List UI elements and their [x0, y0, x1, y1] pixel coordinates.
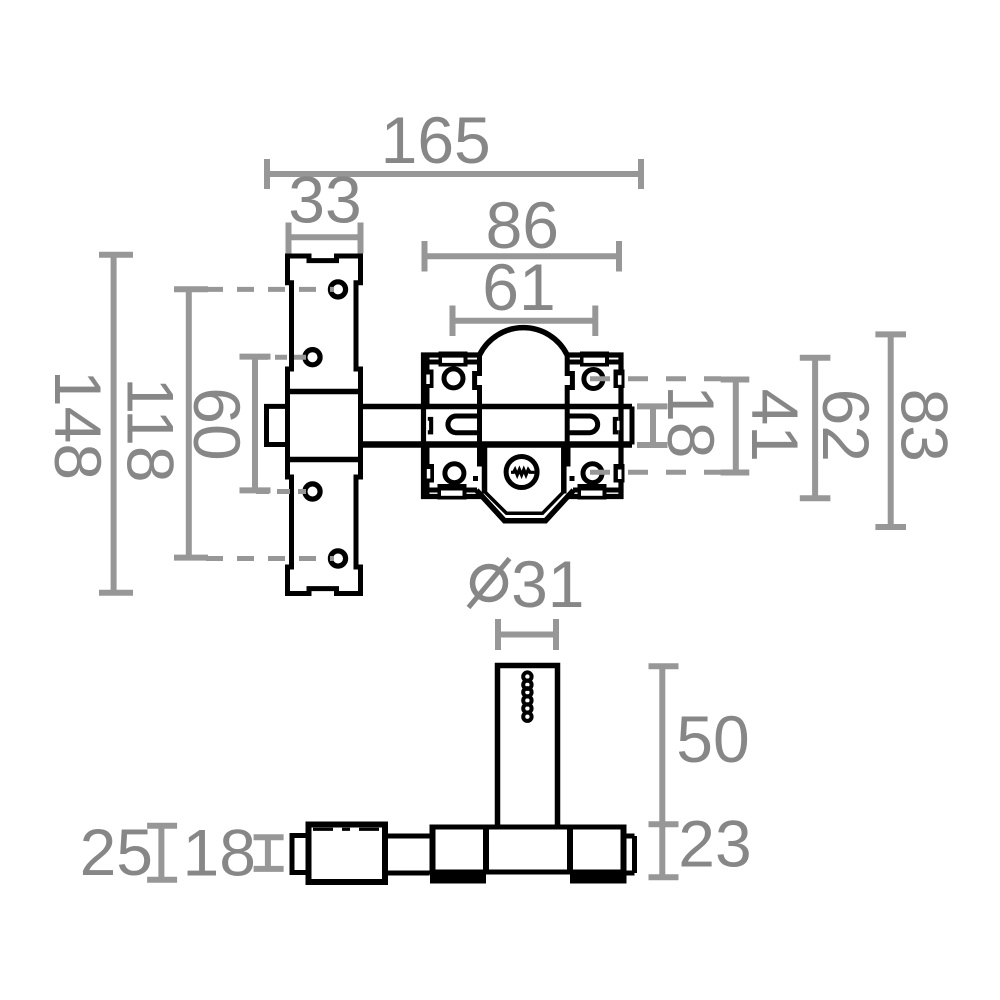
svg-text:61: 61: [482, 250, 555, 324]
svg-text:31: 31: [511, 547, 584, 621]
svg-text:33: 33: [288, 163, 361, 237]
svg-text:62: 62: [809, 389, 883, 462]
svg-text:23: 23: [678, 807, 751, 881]
svg-text:41: 41: [738, 389, 812, 462]
svg-text:148: 148: [41, 370, 115, 480]
svg-text:25: 25: [80, 815, 153, 889]
svg-text:60: 60: [180, 387, 254, 460]
svg-text:18: 18: [182, 816, 255, 890]
svg-text:83: 83: [887, 389, 961, 462]
svg-text:118: 118: [114, 377, 188, 482]
svg-text:165: 165: [381, 103, 491, 177]
svg-text:18: 18: [654, 385, 728, 458]
svg-text:50: 50: [676, 702, 749, 776]
